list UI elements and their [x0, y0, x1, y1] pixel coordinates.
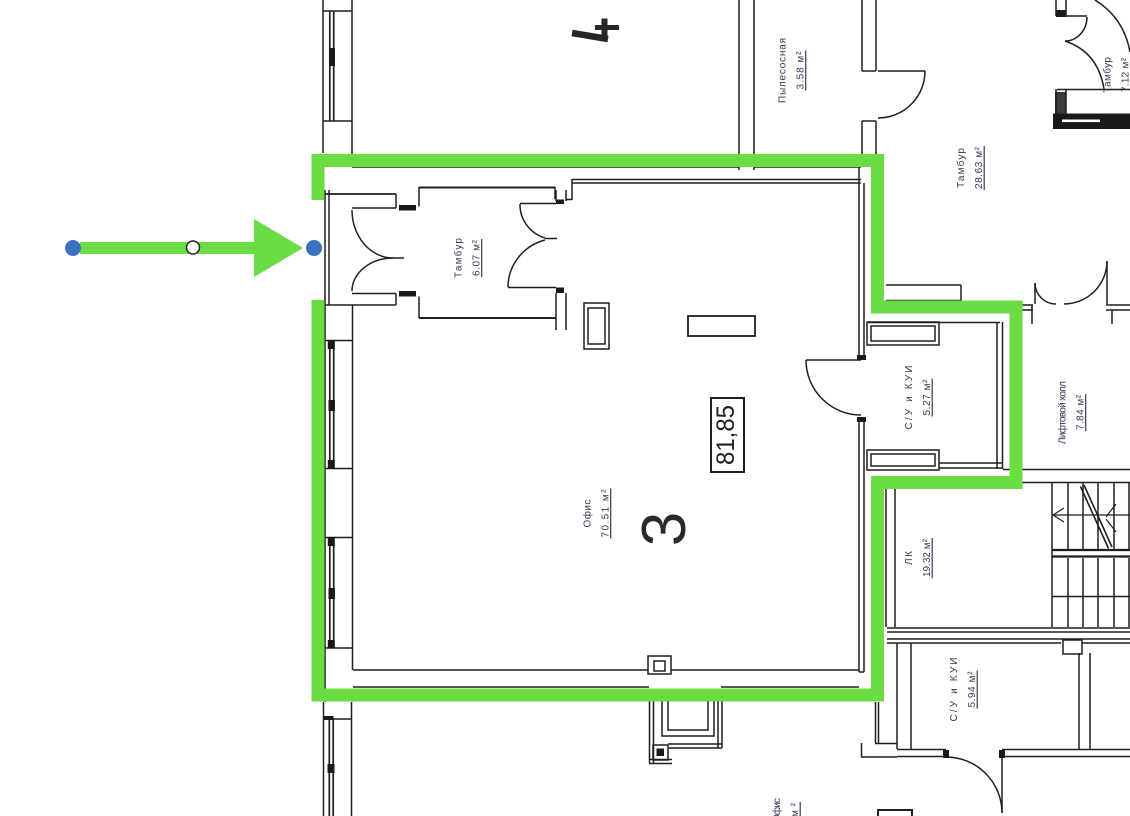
svg-text:Лифтовой холл: Лифтовой холл [1057, 381, 1069, 444]
svg-text:70.51 м²: 70.51 м² [601, 489, 612, 538]
svg-text:28.63 м²: 28.63 м² [974, 146, 985, 189]
svg-text:7.84 м²: 7.84 м² [1076, 394, 1087, 430]
svg-text:С/У и КУИ: С/У и КУИ [949, 658, 960, 722]
svg-text:5.27 м²: 5.27 м² [922, 379, 933, 416]
svg-text:7.12 м²: 7.12 м² [1121, 57, 1130, 92]
svg-text:19.32 м²: 19.32 м² [922, 538, 933, 577]
svg-text:Тамбур: Тамбур [1102, 57, 1114, 93]
svg-text:Тамбур: Тамбур [453, 238, 465, 278]
svg-text:5.94 м²: 5.94 м² [967, 671, 978, 708]
svg-text:Тамбур: Тамбур [955, 148, 967, 188]
svg-text:3.58 м²: 3.58 м² [796, 51, 807, 90]
svg-text:С/У и КУИ: С/У и КУИ [904, 366, 915, 430]
svg-text:81,85: 81,85 [712, 405, 740, 465]
svg-text:Пылесосная: Пылесосная [778, 38, 789, 103]
svg-text:Офис: Офис [771, 798, 783, 816]
svg-text:Офис: Офис [582, 500, 594, 528]
svg-text:3: 3 [630, 512, 699, 546]
svg-text:6.07 м²: 6.07 м² [472, 239, 483, 276]
